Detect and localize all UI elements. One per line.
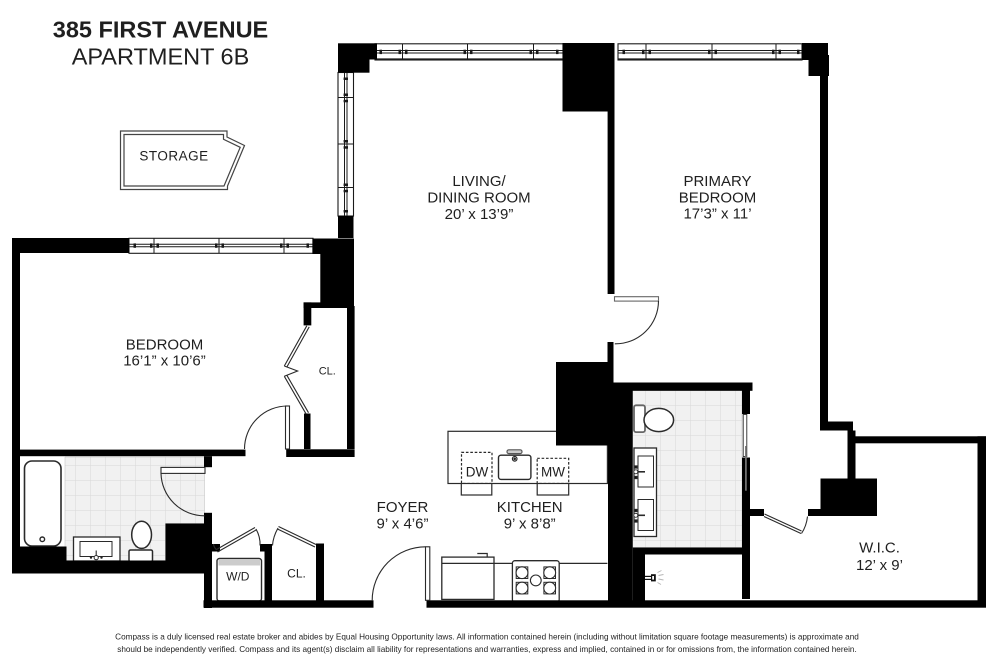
svg-text:9’ x 8’8”: 9’ x 8’8” <box>504 515 556 532</box>
svg-text:12’ x 9’: 12’ x 9’ <box>856 557 903 574</box>
svg-text:BEDROOM: BEDROOM <box>679 189 757 206</box>
svg-text:CL.: CL. <box>287 566 306 580</box>
svg-text:DW: DW <box>466 464 489 479</box>
svg-text:W.I.C.: W.I.C. <box>859 539 900 556</box>
svg-text:PRIMARY: PRIMARY <box>683 173 751 190</box>
svg-text:20’ x 13’9”: 20’ x 13’9” <box>445 206 514 223</box>
svg-text:DINING ROOM: DINING ROOM <box>427 190 530 207</box>
svg-text:APARTMENT 6B: APARTMENT 6B <box>72 44 250 70</box>
svg-text:385 FIRST AVENUE: 385 FIRST AVENUE <box>53 17 268 43</box>
svg-text:Compass is a duly licensed rea: Compass is a duly licensed real estate b… <box>115 633 859 642</box>
svg-text:W/D: W/D <box>226 569 250 583</box>
svg-text:LIVING/: LIVING/ <box>452 173 506 190</box>
svg-text:MW: MW <box>541 464 565 479</box>
svg-text:BEDROOM: BEDROOM <box>126 336 204 353</box>
svg-text:KITCHEN: KITCHEN <box>497 499 563 516</box>
svg-text:should be independently verifi: should be independently verified. Compas… <box>117 645 857 654</box>
svg-text:CL.: CL. <box>319 365 336 377</box>
svg-text:STORAGE: STORAGE <box>139 149 208 164</box>
svg-text:16’1” x 10’6”: 16’1” x 10’6” <box>123 353 206 370</box>
svg-text:FOYER: FOYER <box>377 499 429 516</box>
svg-text:9’ x 4’6”: 9’ x 4’6” <box>377 515 429 532</box>
svg-text:17’3” x 11’: 17’3” x 11’ <box>683 206 751 223</box>
